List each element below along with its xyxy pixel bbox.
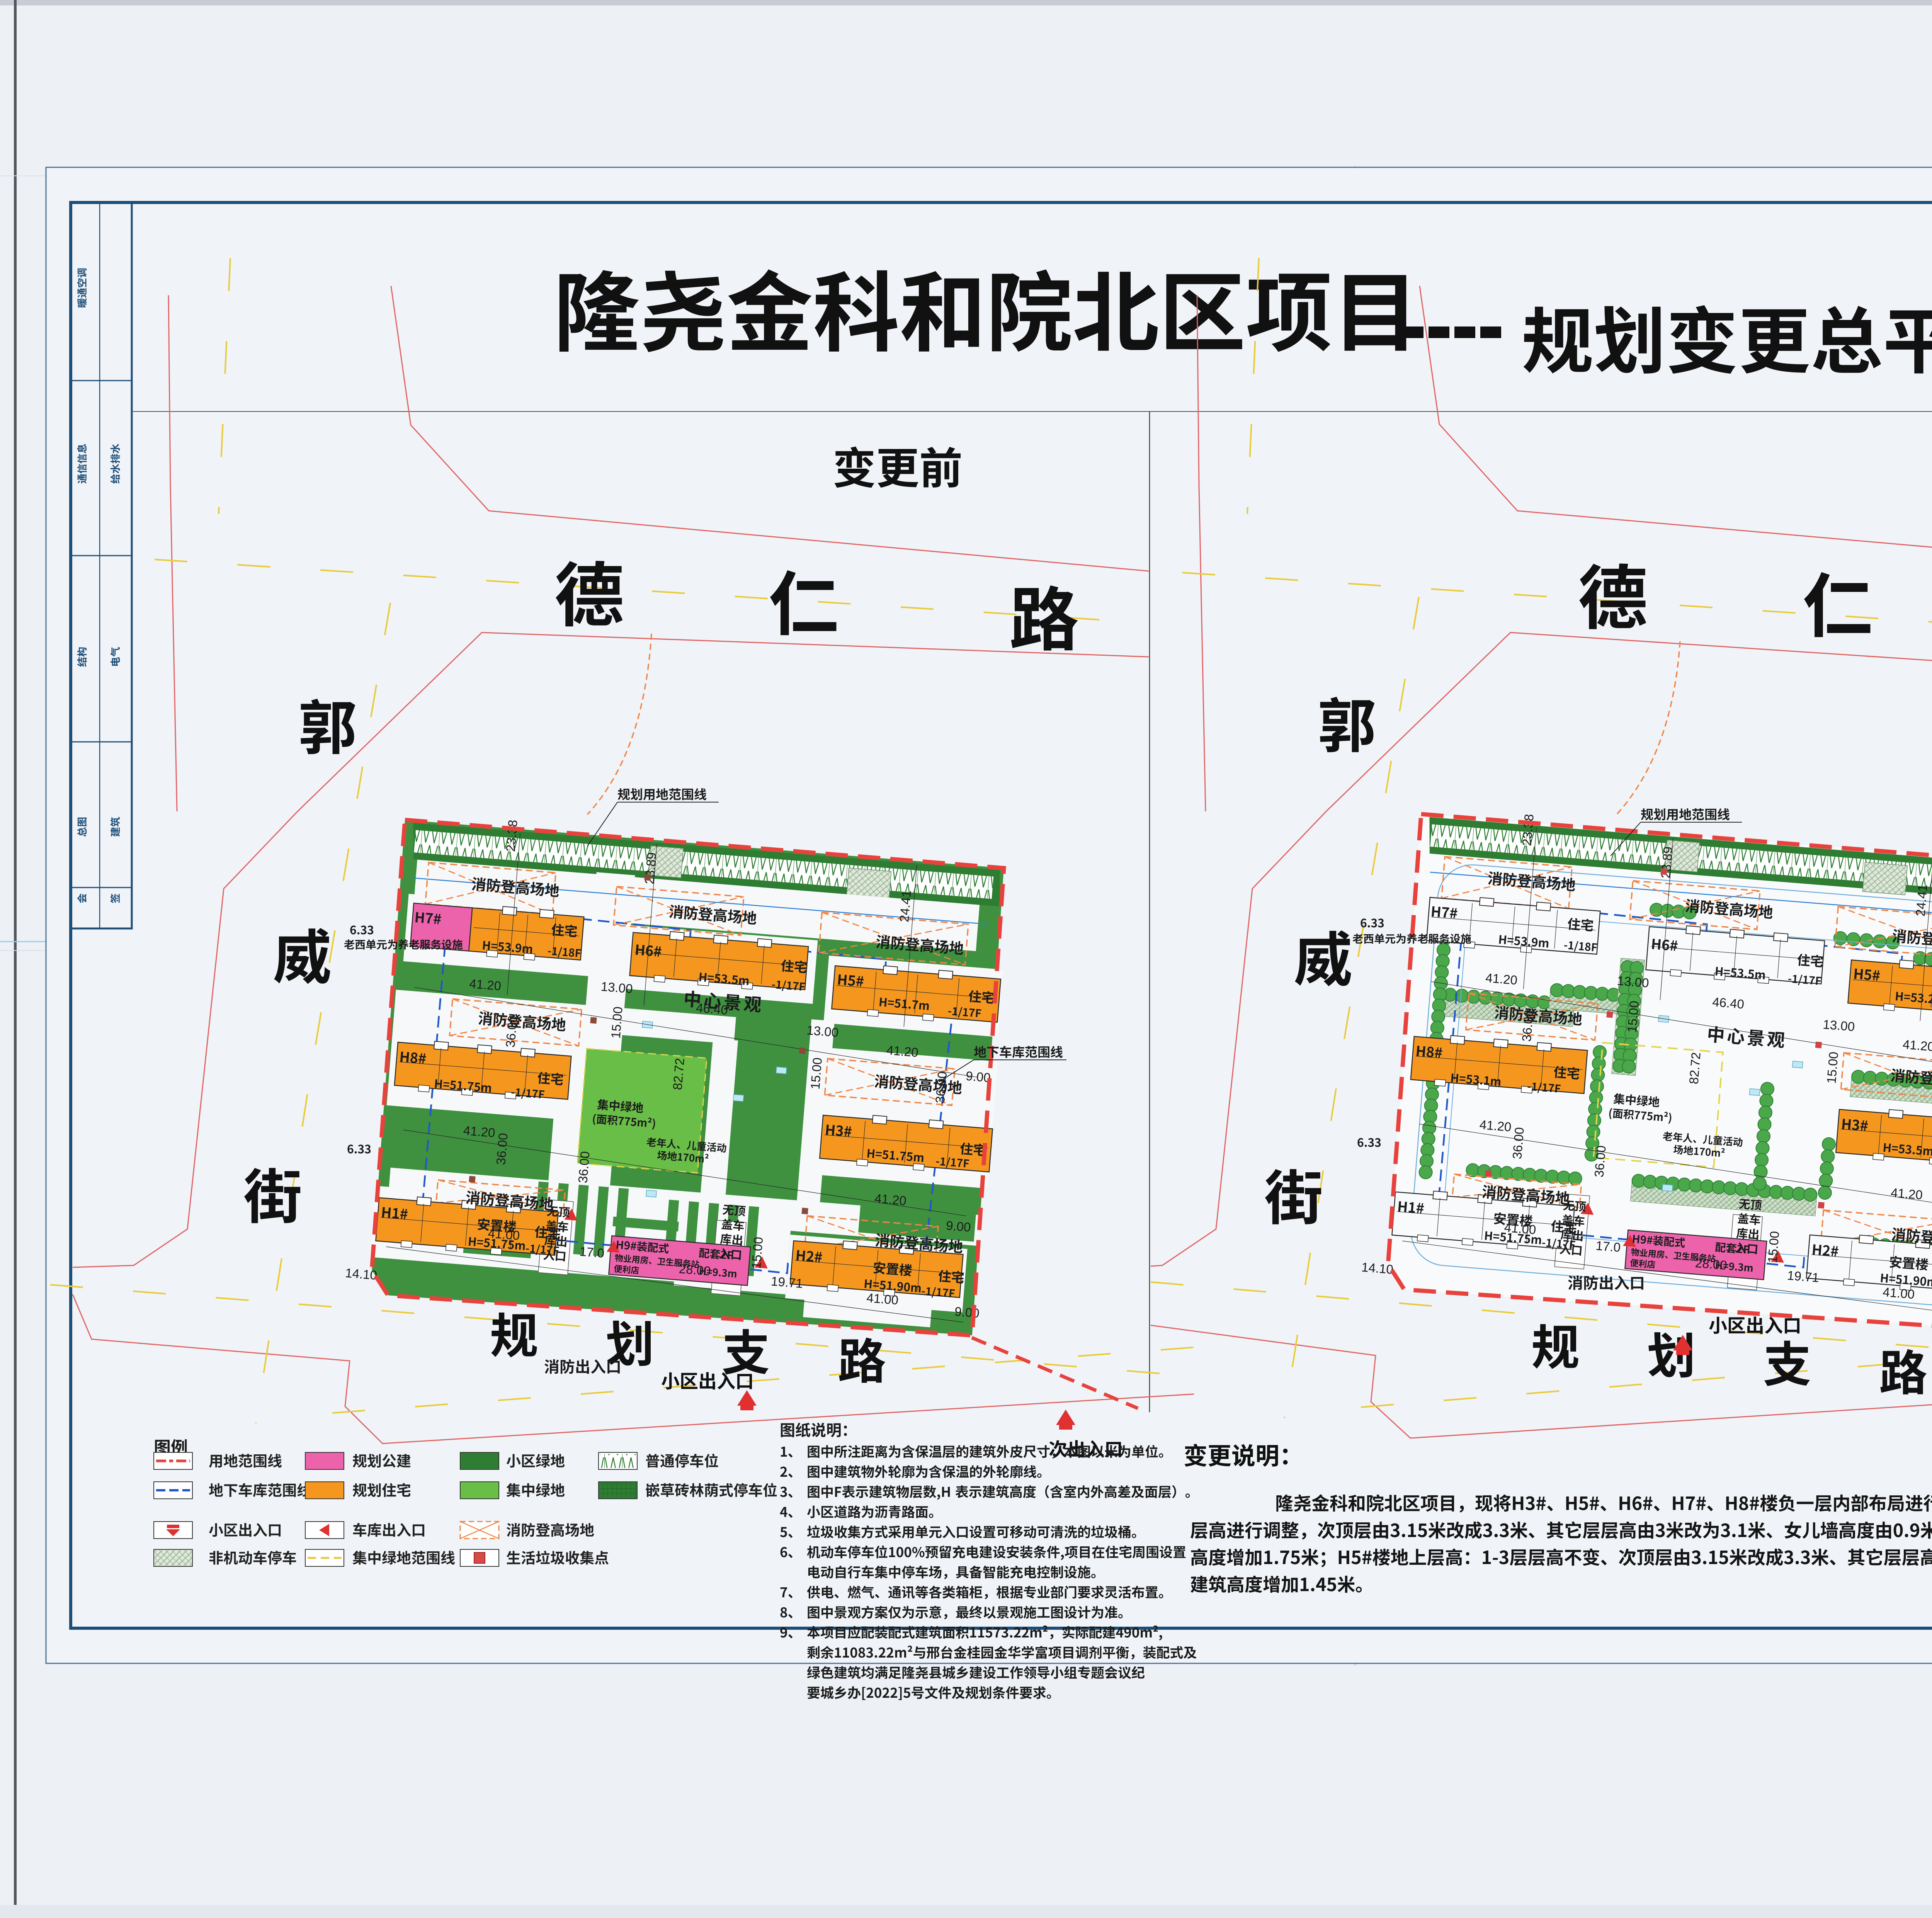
svg-text:28.00: 28.00 — [1695, 1256, 1728, 1273]
svg-text:13.00: 13.00 — [600, 979, 633, 996]
svg-text:24.41: 24.41 — [1913, 884, 1930, 917]
svg-text:41.20: 41.20 — [886, 1043, 919, 1060]
svg-text:41.20: 41.20 — [463, 1123, 496, 1140]
svg-text:15.00: 15.00 — [749, 1236, 766, 1269]
svg-text:36.00: 36.00 — [933, 1071, 950, 1104]
svg-text:41.20: 41.20 — [874, 1191, 907, 1208]
svg-text:36.00: 36.00 — [1592, 1145, 1609, 1178]
svg-text:14.10: 14.10 — [1361, 1260, 1394, 1277]
svg-text:36.00: 36.00 — [503, 1015, 520, 1048]
svg-text:46.40: 46.40 — [696, 1000, 728, 1017]
svg-text:36.00: 36.00 — [1519, 1009, 1536, 1042]
svg-text:41.20: 41.20 — [1890, 1185, 1923, 1202]
svg-text:36.00: 36.00 — [575, 1151, 592, 1183]
svg-text:36.00: 36.00 — [1510, 1127, 1527, 1160]
svg-text:41.00: 41.00 — [866, 1291, 899, 1308]
svg-text:82.72: 82.72 — [670, 1058, 687, 1090]
svg-text:13.00: 13.00 — [1617, 973, 1650, 990]
svg-text:41.00: 41.00 — [1503, 1220, 1536, 1237]
svg-text:19.71: 19.71 — [1787, 1268, 1820, 1285]
svg-text:23.38: 23.38 — [1519, 813, 1536, 846]
svg-text:19.71: 19.71 — [770, 1274, 803, 1291]
svg-text:46.40: 46.40 — [1712, 995, 1745, 1012]
svg-text:9.00: 9.00 — [946, 1218, 971, 1234]
svg-text:15.00: 15.00 — [1824, 1051, 1841, 1084]
svg-text:41.20: 41.20 — [469, 976, 502, 993]
svg-text:15.00: 15.00 — [1765, 1231, 1782, 1263]
svg-text:28.00: 28.00 — [679, 1262, 711, 1279]
svg-text:14.10: 14.10 — [345, 1265, 378, 1282]
svg-text:15.00: 15.00 — [1624, 1000, 1641, 1033]
svg-text:17.0: 17.0 — [579, 1244, 605, 1260]
svg-text:82.72: 82.72 — [1686, 1052, 1703, 1085]
svg-text:41.20: 41.20 — [1902, 1037, 1932, 1054]
svg-text:15.00: 15.00 — [808, 1057, 825, 1090]
svg-text:36.00: 36.00 — [493, 1132, 510, 1165]
svg-text:15.00: 15.00 — [608, 1006, 625, 1039]
svg-text:17.0: 17.0 — [1595, 1238, 1621, 1255]
svg-text:24.41: 24.41 — [897, 890, 914, 923]
svg-text:41.00: 41.00 — [487, 1226, 520, 1243]
svg-text:23.38: 23.38 — [503, 819, 520, 852]
svg-text:13.00: 13.00 — [1822, 1017, 1855, 1034]
svg-text:13.00: 13.00 — [806, 1023, 839, 1040]
svg-text:41.20: 41.20 — [1479, 1117, 1512, 1134]
svg-text:41.00: 41.00 — [1882, 1285, 1915, 1302]
svg-text:41.20: 41.20 — [1485, 971, 1518, 988]
